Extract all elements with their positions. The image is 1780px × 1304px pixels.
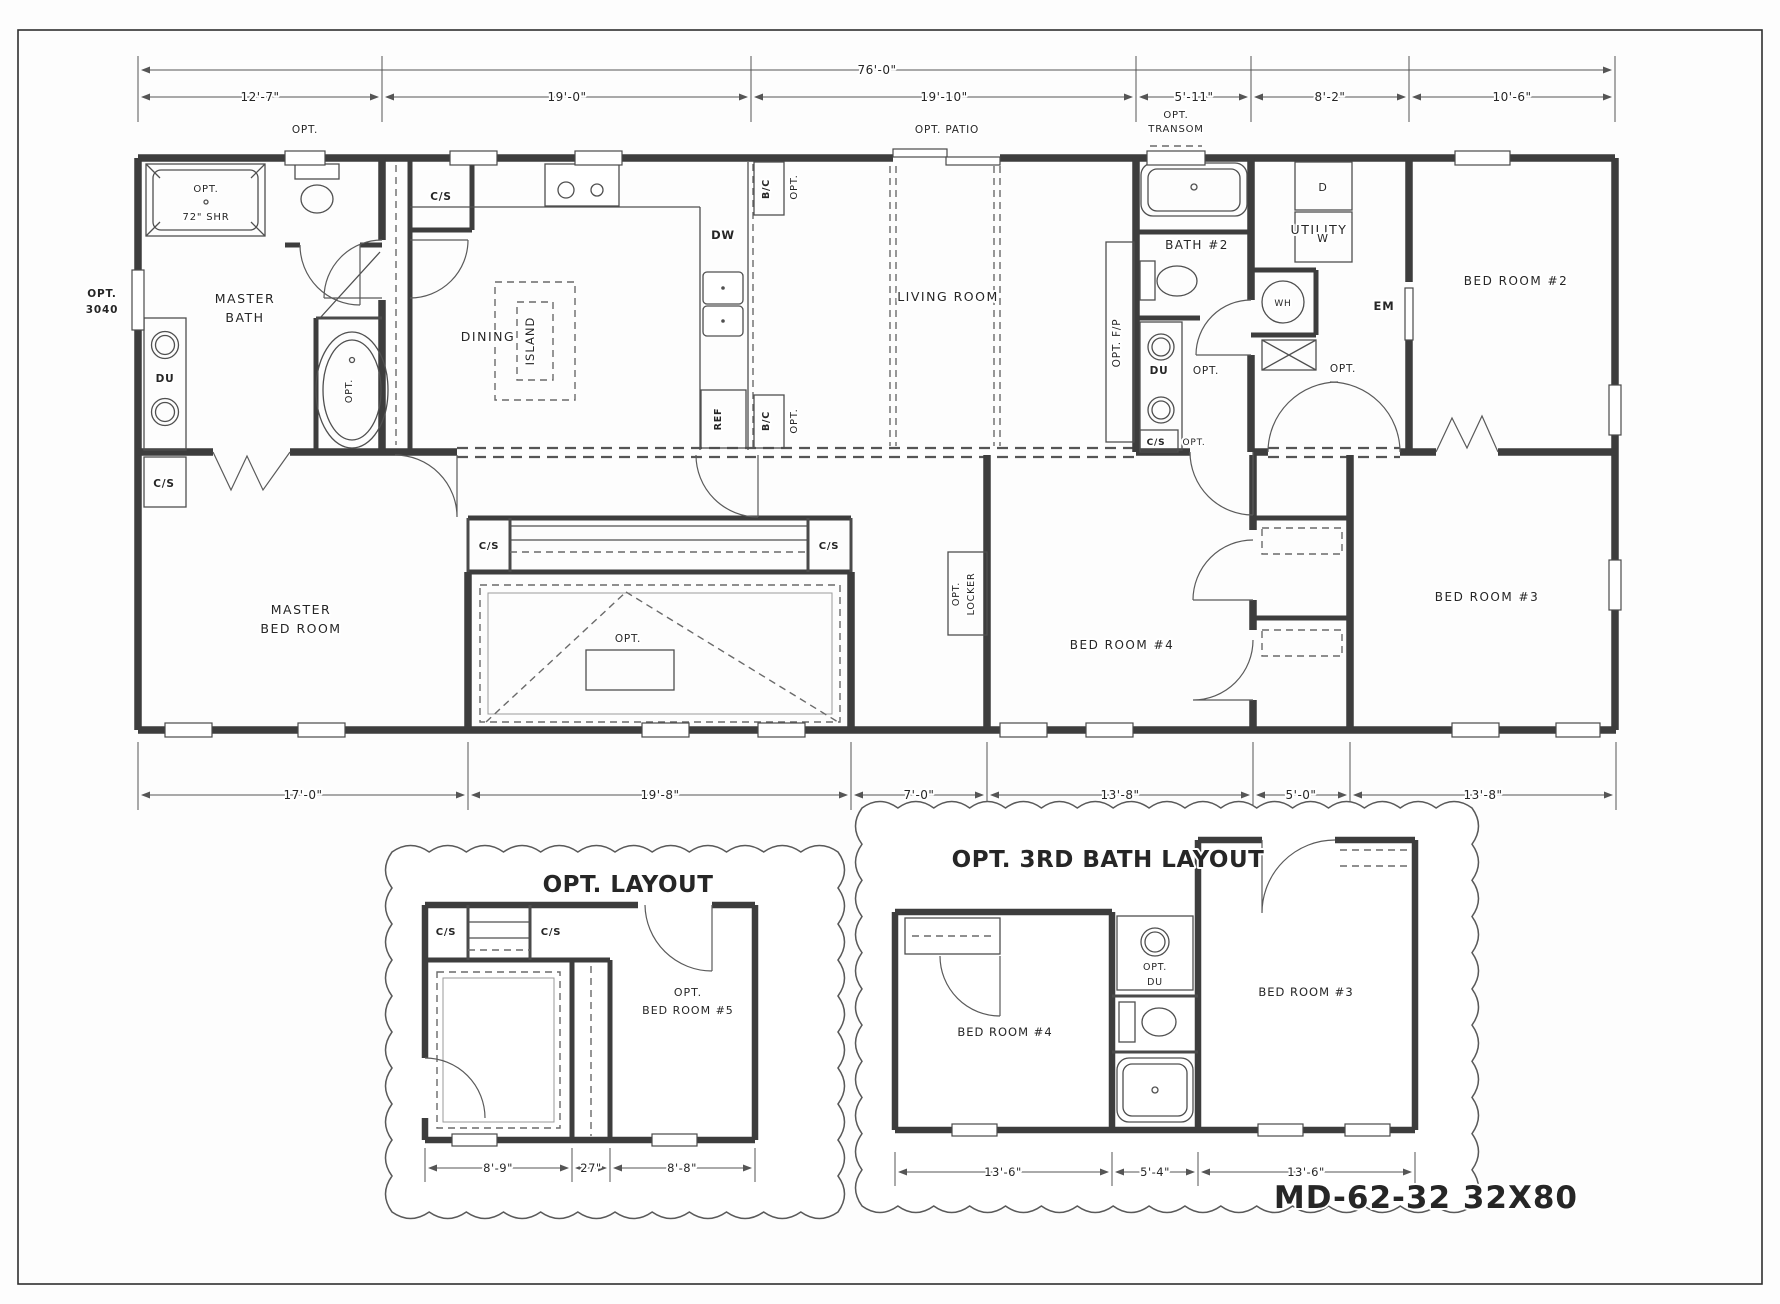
label-dim-top-2: 19'-0": [547, 90, 586, 104]
label-opt-du-bath2: OPT.: [1193, 365, 1219, 377]
windows: [132, 151, 1621, 737]
label-opt-shower: OPT.: [193, 184, 218, 195]
label-shower-size: 72" SHR: [183, 212, 230, 223]
label-room-bath2: BATH #2: [1165, 238, 1229, 252]
label-fixture-washer: W: [1317, 232, 1329, 245]
label-room-bed2: BED ROOM #2: [1464, 274, 1568, 288]
label-fixture-bc-lower: B/C: [761, 411, 772, 431]
utility-fixtures: [1262, 162, 1413, 370]
label-i1-dim-2: 27": [580, 1161, 601, 1175]
label-opt-bc-lower: OPT.: [789, 408, 800, 433]
label-opt-locker-2: LOCKER: [966, 573, 977, 616]
label-i2-bed4: BED ROOM #4: [957, 1025, 1052, 1039]
label-dim-bottom-5: 5'-0": [1286, 788, 1317, 802]
label-i2-bed3: BED ROOM #3: [1258, 985, 1353, 999]
label-i2-du-2: DU: [1147, 977, 1163, 988]
label-i1-bed5-1: OPT.: [674, 986, 702, 999]
label-opt-locker-1: OPT.: [951, 582, 962, 606]
label-opt-room-box: OPT.: [615, 633, 641, 645]
label-fixture-du-master: DU: [156, 373, 175, 385]
label-fixture-cs-wardrobe-right: C/S: [819, 541, 840, 552]
label-room-master-bath-2: BATH: [225, 310, 264, 325]
label-i2-dim-3: 13'-6": [1287, 1165, 1325, 1179]
label-opt-fireplace: OPT. F/P: [1111, 319, 1123, 368]
label-i1-dim-1: 8'-9": [483, 1161, 513, 1175]
label-fixture-em: EM: [1374, 299, 1395, 313]
label-dim-top-3: 19'-10": [920, 90, 967, 104]
label-dim-bottom-1: 17'-0": [283, 788, 322, 802]
revision-cloud-opt-layout: [386, 846, 845, 1219]
label-opt-transom-1: OPT.: [1163, 110, 1188, 121]
label-fixture-wh: WH: [1274, 299, 1291, 309]
label-dim-top-6: 10'-6": [1492, 90, 1531, 104]
label-dim-bottom-2: 19'-8": [640, 788, 679, 802]
label-room-living: LIVING ROOM: [897, 289, 999, 304]
label-dim-top-5: 8'-2": [1315, 90, 1346, 104]
label-dim-top-1: 12'-7": [240, 90, 279, 104]
label-opt-cs-bath2: OPT.: [1182, 438, 1205, 448]
label-opt-patio: OPT. PATIO: [915, 124, 979, 136]
label-room-master-bath-1: MASTER: [215, 291, 276, 306]
label-fixture-dw: DW: [711, 228, 735, 242]
label-room-dining: DINING: [461, 329, 515, 344]
label-i2-du-1: OPT.: [1143, 962, 1167, 973]
label-inset2-title: OPT. 3RD BATH LAYOUT: [952, 847, 1265, 873]
dimension-lines-bottom: [138, 742, 1616, 810]
label-opt-transom-2: TRANSOM: [1147, 124, 1203, 135]
label-fixture-cs-dining: C/S: [430, 191, 452, 203]
doors-and-swings: [213, 240, 1498, 700]
kitchen-fixtures: [410, 162, 784, 450]
label-fixture-bc-upper: B/C: [761, 179, 772, 199]
label-room-bed4: BED ROOM #4: [1070, 638, 1174, 652]
marriage-wall: [138, 448, 1616, 457]
label-dim-bottom-4: 13'-8": [1100, 788, 1139, 802]
label-opt-window-masterbath: OPT.: [292, 124, 318, 136]
label-i2-dim-2: 5'-4": [1140, 1165, 1170, 1179]
label-fixture-du-bath2: DU: [1150, 365, 1169, 377]
label-i1-bed5-2: BED ROOM #5: [642, 1004, 734, 1017]
floorplan-drawing: 76'-0"12'-7"19'-0"19'-10"5'-11"8'-2"10'-…: [0, 0, 1780, 1304]
label-model-number: MD-62-32 32X80: [1274, 1180, 1578, 1216]
bath2-fixtures: [1140, 146, 1247, 452]
label-opt-bc-upper: OPT.: [789, 174, 800, 199]
label-dim-bottom-3: 7'-0": [904, 788, 935, 802]
label-fixture-cs-bath2: C/S: [1147, 438, 1166, 448]
label-fixture-island: ISLAND: [523, 317, 537, 366]
floorplan-sheet: 76'-0"12'-7"19'-0"19'-10"5'-11"8'-2"10'-…: [0, 0, 1780, 1304]
label-dim-bottom-6: 13'-8": [1463, 788, 1502, 802]
label-fixture-cs-wardrobe-left: C/S: [479, 541, 500, 552]
label-fixture-dryer: D: [1318, 181, 1327, 194]
label-inset1-title: OPT. LAYOUT: [543, 872, 714, 898]
label-i1-cs-left: C/S: [436, 927, 457, 938]
label-fixture-ref: REF: [713, 408, 724, 431]
label-opt-utility-door: OPT.: [1330, 363, 1356, 375]
label-dim-top-4: 5'-11": [1174, 90, 1213, 104]
label-i1-cs-right: C/S: [541, 927, 562, 938]
interior-walls: [285, 158, 1409, 730]
label-opt-tub: OPT.: [344, 379, 355, 403]
label-i2-dim-1: 13'-6": [984, 1165, 1022, 1179]
label-room-master-bed-2: BED ROOM: [260, 621, 341, 636]
label-opt-3040-line1: OPT.: [87, 288, 116, 300]
label-fixture-cs-master: C/S: [153, 478, 175, 490]
label-room-master-bed-1: MASTER: [271, 602, 332, 617]
label-dim-overall-width: 76'-0": [857, 63, 896, 77]
label-i1-dim-3: 8'-8": [667, 1161, 697, 1175]
label-opt-3040-line2: 3040: [86, 304, 118, 316]
label-room-bed3: BED ROOM #3: [1435, 590, 1539, 604]
